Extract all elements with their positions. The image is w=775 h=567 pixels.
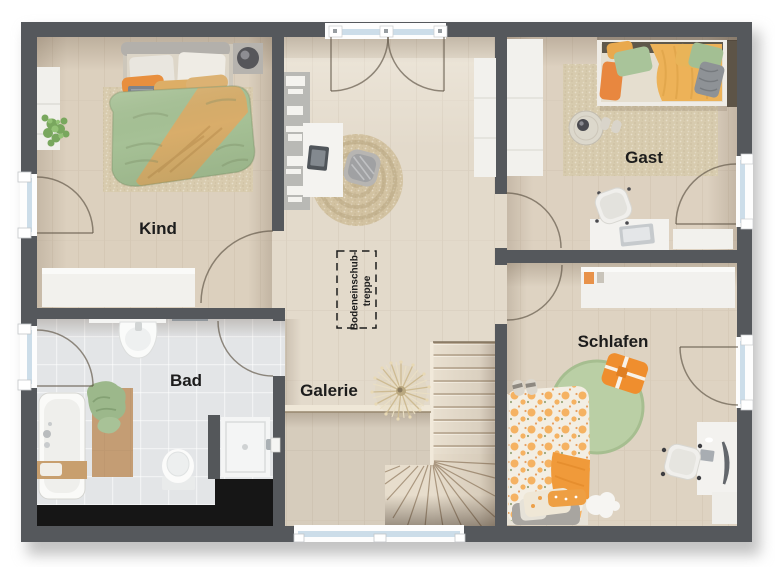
- svg-text:Schlafen: Schlafen: [578, 332, 649, 351]
- svg-text:Galerie: Galerie: [300, 381, 358, 400]
- svg-text:treppe: treppe: [362, 275, 373, 306]
- svg-text:Bodeneinschub-: Bodeneinschub-: [350, 252, 361, 330]
- svg-text:Gast: Gast: [625, 148, 663, 167]
- svg-text:Bad: Bad: [170, 371, 202, 390]
- svg-text:Kind: Kind: [139, 219, 177, 238]
